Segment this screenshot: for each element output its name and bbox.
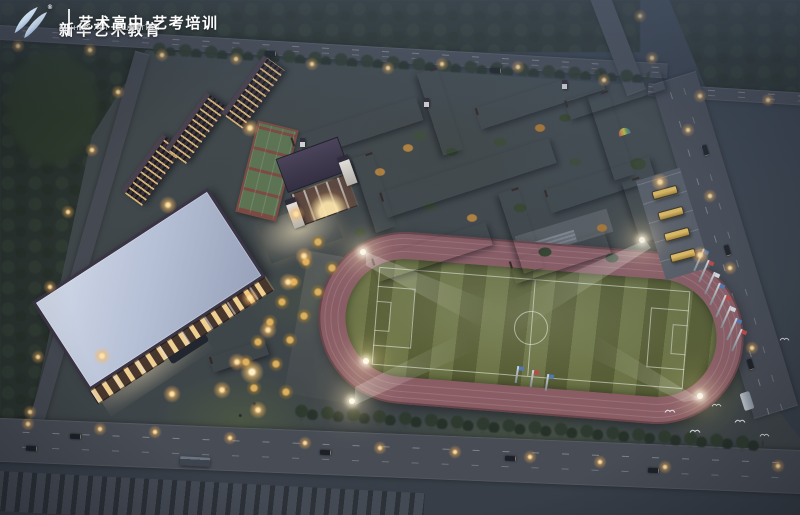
center-circle bbox=[513, 310, 550, 347]
tagline: 艺术高中·艺考培训 bbox=[79, 12, 219, 33]
flag bbox=[518, 366, 523, 370]
lit-facade bbox=[430, 67, 437, 71]
lit-facade bbox=[365, 152, 372, 156]
stadium-floodlight bbox=[363, 358, 369, 364]
car bbox=[26, 446, 37, 452]
city-bus bbox=[180, 456, 210, 467]
campus-aerial-rendering: ® 新华艺术教育 XINHUA ART EDUCATION 艺术高中·艺考培训 bbox=[0, 0, 800, 515]
xinhua-logo: ® bbox=[14, 6, 50, 39]
car bbox=[320, 450, 331, 456]
bird bbox=[735, 418, 745, 424]
goal-box-left bbox=[374, 301, 391, 332]
bird bbox=[760, 432, 769, 438]
car bbox=[505, 456, 516, 462]
brand-header: ® 新华艺术教育 XINHUA ART EDUCATION 艺术高中·艺考培训 bbox=[14, 6, 219, 39]
corner-steeple bbox=[300, 138, 305, 147]
header-divider bbox=[68, 9, 70, 36]
bird bbox=[665, 408, 675, 414]
stadium-floodlight bbox=[639, 237, 645, 243]
registered-trademark: ® bbox=[47, 4, 53, 11]
car bbox=[70, 434, 81, 440]
car bbox=[648, 468, 659, 474]
bird bbox=[690, 428, 700, 434]
stadium-floodlight bbox=[360, 249, 366, 255]
stadium-floodlight bbox=[349, 398, 355, 404]
bird bbox=[712, 402, 721, 408]
stadium-floodlight bbox=[697, 393, 703, 399]
goal-box-right bbox=[670, 324, 687, 355]
corner-steeple bbox=[562, 80, 567, 89]
pitch-boundary bbox=[372, 267, 691, 389]
south-gate-plaza bbox=[198, 372, 292, 430]
flag bbox=[548, 374, 553, 378]
corner-steeple bbox=[424, 98, 429, 107]
car bbox=[265, 51, 276, 57]
forest-meadow bbox=[4, 48, 100, 166]
flag bbox=[533, 370, 538, 374]
bird bbox=[780, 336, 789, 342]
lit-facade bbox=[511, 187, 518, 191]
car bbox=[490, 68, 501, 74]
double-swoosh-icon bbox=[14, 7, 48, 39]
